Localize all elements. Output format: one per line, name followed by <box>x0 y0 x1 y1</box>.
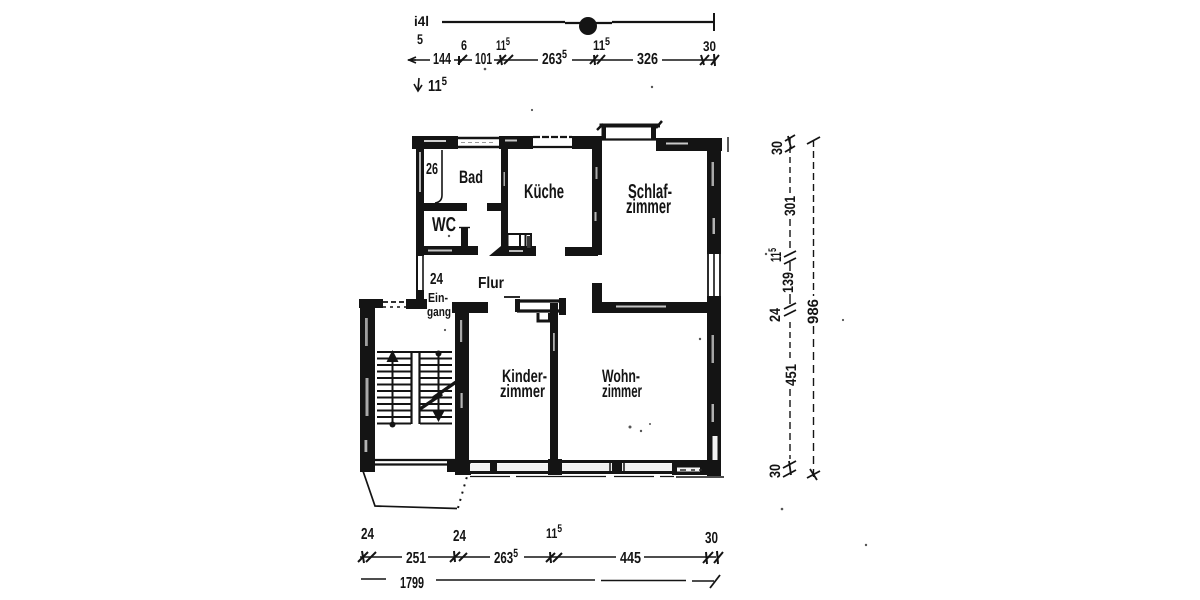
svg-text:1799: 1799 <box>400 575 424 592</box>
svg-text:24: 24 <box>361 526 374 543</box>
svg-text:24: 24 <box>767 307 784 322</box>
svg-text:26: 26 <box>426 161 438 178</box>
svg-text:445: 445 <box>620 550 641 567</box>
svg-text:144: 144 <box>433 51 451 68</box>
svg-text:gang: gang <box>427 304 451 319</box>
svg-text:30: 30 <box>703 38 716 54</box>
svg-text:30: 30 <box>705 530 718 547</box>
svg-text:Flur: Flur <box>478 275 504 292</box>
svg-text:451: 451 <box>783 364 800 386</box>
svg-text:WC: WC <box>432 214 456 236</box>
svg-text:251: 251 <box>406 550 426 567</box>
svg-text:zimmer: zimmer <box>626 196 671 218</box>
svg-text:Küche: Küche <box>524 181 564 203</box>
svg-text:30: 30 <box>769 141 786 155</box>
svg-text:24: 24 <box>453 528 466 545</box>
svg-text:i4l: i4l <box>414 13 429 29</box>
svg-text:Ein-: Ein- <box>428 290 448 305</box>
svg-text:zimmer: zimmer <box>500 381 545 401</box>
svg-text:6: 6 <box>461 37 467 53</box>
svg-text:24: 24 <box>430 271 443 288</box>
svg-text:301: 301 <box>782 196 799 216</box>
svg-text:326: 326 <box>637 51 658 68</box>
svg-text:986: 986 <box>805 299 822 324</box>
svg-text:Bad: Bad <box>459 167 483 187</box>
svg-text:139: 139 <box>780 272 797 293</box>
svg-text:101: 101 <box>475 51 492 68</box>
svg-text:5: 5 <box>417 31 423 47</box>
svg-text:zimmer: zimmer <box>602 381 642 401</box>
svg-text:30: 30 <box>767 464 784 478</box>
